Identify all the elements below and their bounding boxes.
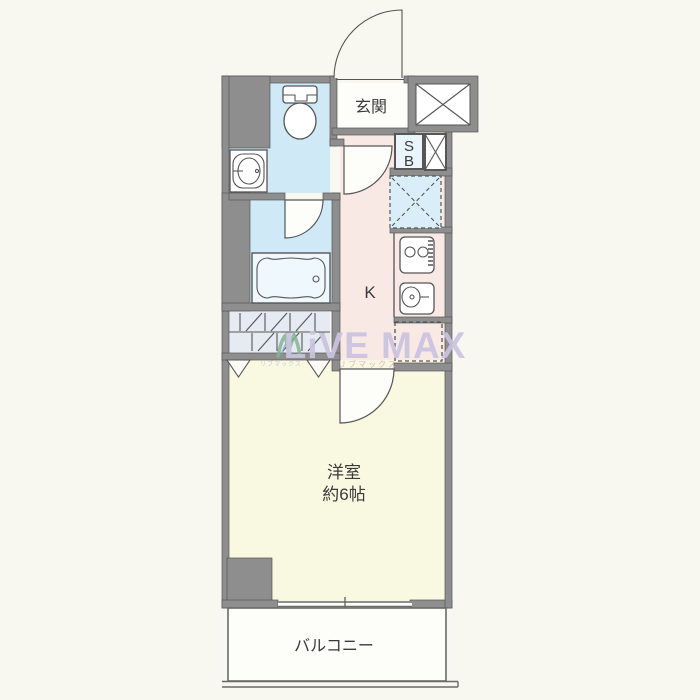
sink-basin-frame xyxy=(400,283,434,314)
sb-box: S B xyxy=(395,134,423,170)
stove-top xyxy=(400,237,434,273)
washbasin-fixture xyxy=(230,150,267,192)
elevator-shaft-box xyxy=(408,76,478,132)
bath-bottom-wall xyxy=(222,303,340,311)
bath-top-wall-right xyxy=(323,193,340,200)
watermark-logo-kana: リブマックス xyxy=(260,360,302,368)
watermark: LiVE MAX リブマックス リブマックス xyxy=(260,325,466,369)
bath-top-wall-left xyxy=(229,193,285,200)
sink-fixture xyxy=(400,283,434,314)
dashed-service-space xyxy=(390,176,441,228)
sb-label-b: B xyxy=(404,153,414,170)
bath-left-wall xyxy=(222,193,250,311)
small-shaft-box xyxy=(425,134,446,170)
bottom-wall-left xyxy=(222,600,278,608)
toilet-entrance-wall xyxy=(330,76,337,146)
toilet-bowl xyxy=(284,103,316,139)
toilet-fixture xyxy=(283,86,317,139)
bathtub-fixture xyxy=(252,253,330,303)
floorplan: S B xyxy=(0,0,700,700)
stove-grill-icon xyxy=(428,241,433,265)
left-wall xyxy=(222,76,229,608)
stove-fixture xyxy=(400,237,434,273)
room-size-label: 約6帖 xyxy=(322,485,365,504)
watermark-brand-kana: リブマックス xyxy=(338,359,398,369)
bottom-left-block xyxy=(227,558,272,604)
corridor-door-jamb xyxy=(330,139,344,146)
kitchen-label: K xyxy=(364,283,376,302)
floorplan-svg: S B xyxy=(0,0,700,700)
balcony-label: バルコニー xyxy=(294,638,374,655)
room-label: 洋室 xyxy=(327,463,361,482)
balcony: バルコニー xyxy=(222,608,458,687)
entrance-label: 玄関 xyxy=(355,98,387,116)
